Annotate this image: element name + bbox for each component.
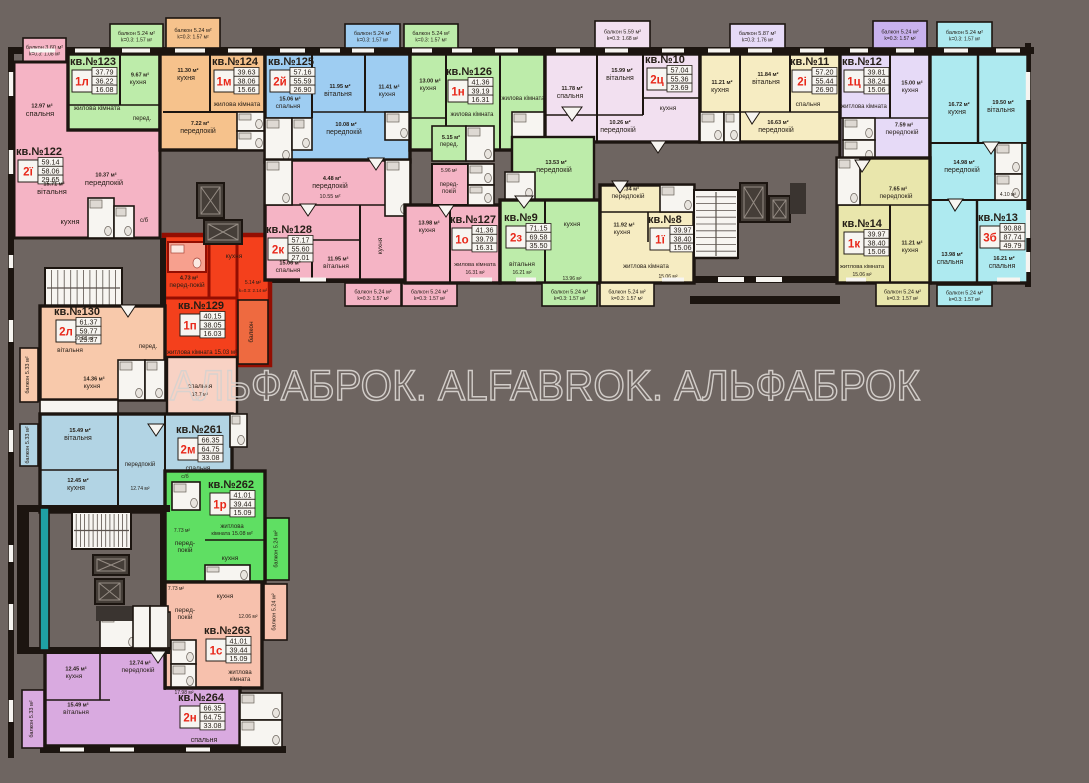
svg-text:5.15 м²: 5.15 м² <box>442 134 460 141</box>
svg-text:39.79: 39.79 <box>476 234 494 243</box>
svg-text:41.36: 41.36 <box>472 78 490 87</box>
svg-text:66.35: 66.35 <box>204 704 222 713</box>
svg-text:вітальня: вітальня <box>64 434 92 442</box>
svg-text:39.97: 39.97 <box>674 226 692 235</box>
svg-text:кухня: кухня <box>948 109 966 116</box>
svg-text:55.44: 55.44 <box>816 76 834 85</box>
svg-text:передпокій: передпокій <box>536 166 572 174</box>
svg-text:1л: 1л <box>75 77 89 89</box>
svg-text:кв.№264: кв.№264 <box>178 692 225 704</box>
svg-text:14.36 м²: 14.36 м² <box>83 376 104 383</box>
svg-text:кв.№13: кв.№13 <box>978 212 1018 224</box>
svg-text:вітальня: вітальня <box>37 187 67 196</box>
svg-text:с/б: с/б <box>181 474 188 480</box>
svg-text:кв.№127: кв.№127 <box>450 214 496 226</box>
svg-text:33.08: 33.08 <box>202 453 220 462</box>
svg-text:кухня: кухня <box>217 593 234 600</box>
svg-text:15.66: 15.66 <box>238 85 256 94</box>
svg-text:балкон 5.87 м²: балкон 5.87 м² <box>739 31 776 37</box>
svg-text:64.75: 64.75 <box>202 444 220 453</box>
svg-text:балкон 5.24 м²: балкон 5.24 м² <box>946 30 983 36</box>
svg-text:кв.№11: кв.№11 <box>790 56 829 68</box>
svg-text:12.74 м²: 12.74 м² <box>130 486 149 492</box>
svg-text:кухня: кухня <box>60 217 79 226</box>
svg-text:11.21 м²: 11.21 м² <box>902 240 923 247</box>
svg-text:15.06 м²: 15.06 м² <box>279 96 300 103</box>
svg-text:66.35: 66.35 <box>202 436 220 445</box>
svg-text:спальня: спальня <box>937 259 964 266</box>
svg-text:с/б: с/б <box>140 218 149 224</box>
svg-text:2ї: 2ї <box>23 167 33 179</box>
svg-text:кухня: кухня <box>177 75 195 82</box>
svg-text:спальня: спальня <box>796 101 821 108</box>
svg-text:k=0.3: 1.57 м²: k=0.3: 1.57 м² <box>357 38 389 44</box>
svg-text:15.06: 15.06 <box>868 247 886 256</box>
svg-text:16.31 м²: 16.31 м² <box>465 270 484 276</box>
svg-text:26.90: 26.90 <box>816 85 834 94</box>
svg-text:2і: 2і <box>797 77 807 89</box>
svg-text:покій: покій <box>177 546 192 554</box>
svg-text:16.63 м²: 16.63 м² <box>767 119 788 126</box>
svg-text:16.72 м²: 16.72 м² <box>948 101 969 108</box>
svg-text:5.14 м²: 5.14 м² <box>245 280 262 286</box>
svg-text:передпокій: передпокій <box>758 126 794 134</box>
svg-text:балкон 5.24 м²: балкон 5.24 м² <box>411 290 448 296</box>
svg-text:k=0.3: 1.57 м²: k=0.3: 1.57 м² <box>357 296 389 302</box>
svg-text:1о: 1о <box>455 235 468 247</box>
svg-text:перед-покій: перед-покій <box>169 281 205 289</box>
svg-text:кухня: кухня <box>226 253 243 260</box>
svg-text:2н: 2н <box>183 713 196 725</box>
svg-text:55.36: 55.36 <box>671 74 689 83</box>
svg-text:жилова кімната: жилова кімната <box>74 104 121 112</box>
svg-text:k=0.3: 1.57 м²: k=0.3: 1.57 м² <box>177 35 209 41</box>
svg-text:спальня: спальня <box>557 93 584 100</box>
svg-text:балкон 5.24 м²: балкон 5.24 м² <box>881 30 918 36</box>
svg-text:передпокій: передпокій <box>125 461 156 468</box>
svg-text:4.48 м²: 4.48 м² <box>323 175 341 182</box>
svg-text:59.77: 59.77 <box>80 326 98 335</box>
svg-text:жилова кімната: жилова кімната <box>450 112 494 118</box>
svg-text:15.06 м²: 15.06 м² <box>852 272 871 278</box>
svg-text:вітальня: вітальня <box>323 262 349 270</box>
svg-text:12.06 м²: 12.06 м² <box>238 614 257 620</box>
svg-text:2к: 2к <box>272 245 284 257</box>
svg-text:кв.№130: кв.№130 <box>54 306 100 318</box>
svg-text:балкон: балкон <box>247 321 255 343</box>
svg-text:16.03: 16.03 <box>204 329 222 338</box>
svg-text:11.84 м²: 11.84 м² <box>758 71 779 78</box>
svg-text:спальня: спальня <box>276 267 301 274</box>
svg-text:15.00 м²: 15.00 м² <box>901 80 922 87</box>
svg-text:7.73 м²: 7.73 м² <box>168 586 185 592</box>
svg-text:балкон 5.24 м²: балкон 5.24 м² <box>608 290 645 296</box>
svg-text:кв.№261: кв.№261 <box>176 424 222 436</box>
svg-text:33.08: 33.08 <box>204 721 222 730</box>
svg-text:11.92 м²: 11.92 м² <box>614 222 635 229</box>
svg-text:10.26 м²: 10.26 м² <box>609 119 630 126</box>
svg-text:10.55 м²: 10.55 м² <box>320 194 341 200</box>
svg-text:кв.№14: кв.№14 <box>842 218 883 230</box>
svg-text:41.01: 41.01 <box>230 637 248 646</box>
svg-text:перед.: перед. <box>133 116 152 122</box>
svg-text:житлова: житлова <box>220 524 244 530</box>
svg-text:k=0.3: 1.76 м²: k=0.3: 1.76 м² <box>742 38 774 44</box>
svg-text:балкон 5.24 м²: балкон 5.24 м² <box>354 290 391 296</box>
svg-text:балкон 5.24 м²: балкон 5.24 м² <box>946 291 983 297</box>
svg-text:41.36: 41.36 <box>476 226 494 235</box>
svg-text:15.06: 15.06 <box>868 85 886 94</box>
svg-text:11.78 м²: 11.78 м² <box>562 85 583 92</box>
svg-text:61.37: 61.37 <box>80 318 98 327</box>
svg-text:жилова кімната: жилова кімната <box>214 100 261 108</box>
svg-text:59.14: 59.14 <box>42 158 60 167</box>
svg-text:k=0.3: 1.57 м²: k=0.3: 1.57 м² <box>949 297 981 303</box>
svg-text:кв.№129: кв.№129 <box>178 300 224 312</box>
svg-text:14.98 м²: 14.98 м² <box>953 159 974 166</box>
svg-text:кімната 15.08 м²: кімната 15.08 м² <box>211 531 253 537</box>
svg-text:15.99 м²: 15.99 м² <box>611 67 632 74</box>
svg-text:вітальня: вітальня <box>987 106 1015 114</box>
svg-text:передпокій: передпокій <box>121 666 154 674</box>
svg-text:житлова кімната: житлова кімната <box>623 264 669 270</box>
svg-text:вітальня: вітальня <box>509 260 535 268</box>
svg-text:спальня: спальня <box>989 263 1016 270</box>
svg-text:15.06 м²: 15.06 м² <box>279 260 300 267</box>
svg-text:11.95 м²: 11.95 м² <box>328 256 349 263</box>
svg-text:16.21 м²: 16.21 м² <box>512 270 531 276</box>
svg-text:k=0.3: 1.57 м²: k=0.3: 1.57 м² <box>884 36 916 42</box>
svg-text:k=0.3: 1.68 м²: k=0.3: 1.68 м² <box>607 36 639 42</box>
svg-text:38.24: 38.24 <box>868 76 886 85</box>
svg-text:10.37 м²: 10.37 м² <box>95 172 116 179</box>
svg-text:балкон 5.33 м²: балкон 5.33 м² <box>25 426 31 463</box>
svg-text:балкон 5.24 м²: балкон 5.24 м² <box>551 290 588 296</box>
svg-text:k=0.3: 1.57 м²: k=0.3: 1.57 м² <box>887 296 919 302</box>
svg-text:1м: 1м <box>217 77 232 89</box>
svg-text:2й: 2й <box>273 77 286 89</box>
svg-text:кухня: кухня <box>379 91 396 98</box>
svg-text:4.73 м²: 4.73 м² <box>180 275 198 282</box>
svg-text:1к: 1к <box>848 239 860 251</box>
svg-text:передпокій: передпокій <box>600 126 636 134</box>
svg-text:кв.№126: кв.№126 <box>446 66 492 78</box>
svg-text:кв.№9: кв.№9 <box>504 212 538 224</box>
svg-text:15.09: 15.09 <box>234 508 252 517</box>
svg-text:кв.№125: кв.№125 <box>268 56 314 68</box>
svg-text:житлова: житлова <box>228 670 252 676</box>
svg-text:7.22 м²: 7.22 м² <box>191 120 209 127</box>
svg-text:вітальня: вітальня <box>57 346 83 354</box>
svg-text:1ц: 1ц <box>847 77 860 89</box>
svg-text:2м: 2м <box>181 445 196 457</box>
svg-text:39.81: 39.81 <box>868 68 886 77</box>
svg-text:передпокій: передпокій <box>885 128 918 136</box>
svg-text:19.50 м²: 19.50 м² <box>992 99 1013 106</box>
svg-text:кв.№128: кв.№128 <box>266 224 312 236</box>
svg-text:передпокій: передпокій <box>611 192 644 200</box>
svg-text:69.58: 69.58 <box>530 232 548 241</box>
svg-text:кухня: кухня <box>902 247 919 254</box>
svg-text:k=0.3: 1.57 м²: k=0.3: 1.57 м² <box>415 38 447 44</box>
svg-text:кухня: кухня <box>420 85 437 92</box>
svg-text:15.09: 15.09 <box>230 654 248 663</box>
svg-text:кухня: кухня <box>66 673 83 680</box>
svg-text:житлова кімната: житлова кімната <box>840 264 885 270</box>
svg-text:житлова кімната: житлова кімната <box>841 104 887 110</box>
svg-text:кв.№12: кв.№12 <box>842 56 882 68</box>
svg-text:передпокій: передпокій <box>879 192 912 200</box>
svg-text:11.41 м²: 11.41 м² <box>379 84 400 91</box>
svg-text:кв.№262: кв.№262 <box>208 479 254 491</box>
svg-text:передпокій: передпокій <box>180 127 216 135</box>
svg-text:55.59: 55.59 <box>294 76 312 85</box>
svg-text:2з: 2з <box>510 233 522 245</box>
svg-text:перед-: перед- <box>175 540 195 547</box>
svg-text:11.30 м²: 11.30 м² <box>178 67 199 74</box>
svg-text:балкон 5.24 м²: балкон 5.24 м² <box>412 31 449 37</box>
svg-text:39.19: 39.19 <box>472 86 490 95</box>
svg-text:90.88: 90.88 <box>1004 224 1022 233</box>
svg-text:жилова кімната: жилова кімната <box>501 96 545 102</box>
svg-text:64.75: 64.75 <box>204 712 222 721</box>
svg-text:39.97: 39.97 <box>868 230 886 239</box>
svg-text:15.49 м²: 15.49 м² <box>67 702 88 709</box>
svg-text:передпокій: передпокій <box>326 128 362 136</box>
svg-text:13.96 м²: 13.96 м² <box>562 276 581 282</box>
svg-text:балкон 5.24 м²: балкон 5.24 м² <box>174 28 211 34</box>
svg-text:кухня: кухня <box>67 485 85 492</box>
svg-text:7.59 м²: 7.59 м² <box>895 122 913 129</box>
svg-text:кв.№8: кв.№8 <box>648 214 682 226</box>
svg-text:55.60: 55.60 <box>292 244 310 253</box>
svg-text:вітальня: вітальня <box>63 708 89 716</box>
svg-text:57.20: 57.20 <box>816 68 834 77</box>
svg-text:кв.№263: кв.№263 <box>204 625 250 637</box>
svg-text:балкон 5.24 м²: балкон 5.24 м² <box>118 31 155 37</box>
svg-text:15.49 м²: 15.49 м² <box>69 427 90 434</box>
svg-text:кв.№123: кв.№123 <box>70 56 116 68</box>
svg-text:38.05: 38.05 <box>204 320 222 329</box>
svg-text:k=0.3: 1.57 м²: k=0.3: 1.57 м² <box>121 38 153 44</box>
svg-text:спальня: спальня <box>26 109 54 118</box>
svg-text:39.44: 39.44 <box>234 499 252 508</box>
svg-text:16.08: 16.08 <box>96 85 114 94</box>
svg-text:7.73 м²: 7.73 м² <box>174 528 191 534</box>
svg-text:5.96 м²: 5.96 м² <box>441 168 458 174</box>
svg-text:покій: покій <box>177 613 192 621</box>
svg-text:39.44: 39.44 <box>230 645 248 654</box>
svg-text:38.06: 38.06 <box>238 76 256 85</box>
svg-text:1п: 1п <box>183 321 196 333</box>
svg-text:кухня: кухня <box>902 87 919 94</box>
svg-text:передпокій: передпокій <box>944 166 980 174</box>
svg-text:57.16: 57.16 <box>294 68 312 77</box>
svg-text:спальня: спальня <box>191 737 218 744</box>
svg-text:k=0.3: 2.14 м²: k=0.3: 2.14 м² <box>239 288 268 293</box>
svg-text:4.10 м²: 4.10 м² <box>1000 192 1017 198</box>
svg-text:12.45 м²: 12.45 м² <box>67 477 88 484</box>
svg-text:1р: 1р <box>213 500 226 512</box>
svg-text:перед.: перед. <box>139 344 158 350</box>
svg-text:12.74 м²: 12.74 м² <box>129 660 150 667</box>
svg-text:k=0.3: 1.57 м²: k=0.3: 1.57 м² <box>949 37 981 43</box>
svg-text:балкон 5.24 м²: балкон 5.24 м² <box>884 290 921 296</box>
svg-text:13.98 м²: 13.98 м² <box>418 220 439 227</box>
svg-text:9.67 м²: 9.67 м² <box>131 72 149 79</box>
svg-text:10.67 м²: 10.67 м² <box>74 336 93 342</box>
svg-text:13.98 м²: 13.98 м² <box>941 251 962 258</box>
svg-text:перед.: перед. <box>440 142 459 148</box>
svg-text:39.63: 39.63 <box>238 68 256 77</box>
svg-text:41.01: 41.01 <box>234 491 252 500</box>
svg-text:перед-: перед- <box>175 607 195 614</box>
svg-text:k=0.3: 1.57 м²: k=0.3: 1.57 м² <box>414 296 446 302</box>
svg-text:13.53 м²: 13.53 м² <box>545 159 566 166</box>
svg-text:кухня: кухня <box>222 555 239 562</box>
svg-text:38.40: 38.40 <box>674 234 692 243</box>
svg-text:57.17: 57.17 <box>292 236 310 245</box>
svg-text:покій: покій <box>442 188 456 195</box>
svg-text:57.04: 57.04 <box>671 66 689 75</box>
svg-text:1н: 1н <box>451 87 464 99</box>
svg-text:7.65 м²: 7.65 м² <box>889 186 907 193</box>
svg-text:кв.№122: кв.№122 <box>16 146 62 158</box>
svg-text:перед-: перед- <box>440 182 459 188</box>
svg-text:жилова кімната: жилова кімната <box>454 262 496 268</box>
svg-text:87.74: 87.74 <box>1004 232 1022 241</box>
svg-text:кімната: кімната <box>230 677 251 683</box>
svg-text:кухня: кухня <box>419 227 436 234</box>
svg-text:2ц: 2ц <box>650 75 663 87</box>
svg-text:k=0.3: 1.57 м²: k=0.3: 1.57 м² <box>554 296 586 302</box>
svg-text:вітальня: вітальня <box>752 78 780 86</box>
svg-text:11.21 м²: 11.21 м² <box>712 79 733 86</box>
svg-text:23.69: 23.69 <box>671 83 689 92</box>
svg-text:спальня: спальня <box>276 103 301 110</box>
svg-text:2л: 2л <box>59 327 73 339</box>
svg-text:житлова кімната 15.03 м²: житлова кімната 15.03 м² <box>167 350 237 356</box>
svg-text:кухня: кухня <box>614 229 631 236</box>
svg-text:49.79: 49.79 <box>1004 241 1022 250</box>
svg-text:35.50: 35.50 <box>530 241 548 250</box>
svg-text:40.15: 40.15 <box>204 312 222 321</box>
svg-text:16.31: 16.31 <box>472 95 490 104</box>
svg-text:кв.№10: кв.№10 <box>645 54 685 66</box>
svg-text:вітальня: вітальня <box>324 90 352 98</box>
svg-text:1ї: 1ї <box>655 235 665 247</box>
svg-text:k=0.3: 1.57 м²: k=0.3: 1.57 м² <box>611 296 643 302</box>
svg-text:балкон 5.24 м²: балкон 5.24 м² <box>274 530 280 567</box>
svg-text:1с: 1с <box>210 646 223 658</box>
svg-text:балкон 5.24 м²: балкон 5.24 м² <box>272 593 278 630</box>
svg-text:37.79: 37.79 <box>96 68 114 77</box>
svg-text:балкон 5.59 м²: балкон 5.59 м² <box>604 30 641 36</box>
svg-text:передпокій: передпокій <box>312 182 348 190</box>
svg-text:кв.№124: кв.№124 <box>212 56 259 68</box>
svg-text:балкон 5.33 м²: балкон 5.33 м² <box>29 700 35 737</box>
svg-text:15.06: 15.06 <box>674 243 692 252</box>
svg-text:12.45 м²: 12.45 м² <box>65 666 86 673</box>
svg-text:11.95 м²: 11.95 м² <box>330 83 351 90</box>
svg-text:АЛЬФАБРОК. ALFABROK. АЛЬФАБРОК: АЛЬФАБРОК. ALFABROK. АЛЬФАБРОК <box>170 362 920 410</box>
svg-text:передпокій: передпокій <box>85 178 123 187</box>
svg-text:балкон 5.33 м²: балкон 5.33 м² <box>25 356 31 393</box>
svg-text:кухня: кухня <box>84 383 101 390</box>
svg-text:38.40: 38.40 <box>868 238 886 247</box>
svg-text:балкон 5.24 м²: балкон 5.24 м² <box>354 31 391 37</box>
svg-text:3б: 3б <box>983 233 997 245</box>
svg-text:15.71 м²: 15.71 м² <box>43 181 64 188</box>
svg-text:кухня: кухня <box>660 105 677 112</box>
svg-text:16.31: 16.31 <box>476 243 494 252</box>
svg-text:кухня: кухня <box>130 79 147 86</box>
svg-text:71.15: 71.15 <box>530 224 548 233</box>
svg-text:36.22: 36.22 <box>96 76 114 85</box>
svg-text:26.90: 26.90 <box>294 85 312 94</box>
svg-text:12.97 м²: 12.97 м² <box>31 103 52 110</box>
svg-text:кухня: кухня <box>377 237 384 254</box>
svg-text:кухня: кухня <box>711 87 729 94</box>
svg-text:16.21 м²: 16.21 м² <box>993 255 1014 262</box>
svg-text:10.08 м²: 10.08 м² <box>335 121 356 128</box>
svg-text:58.06: 58.06 <box>42 166 60 175</box>
svg-text:кухня: кухня <box>564 221 581 228</box>
svg-text:вітальня: вітальня <box>606 74 634 82</box>
svg-text:13.00 м²: 13.00 м² <box>419 78 440 85</box>
